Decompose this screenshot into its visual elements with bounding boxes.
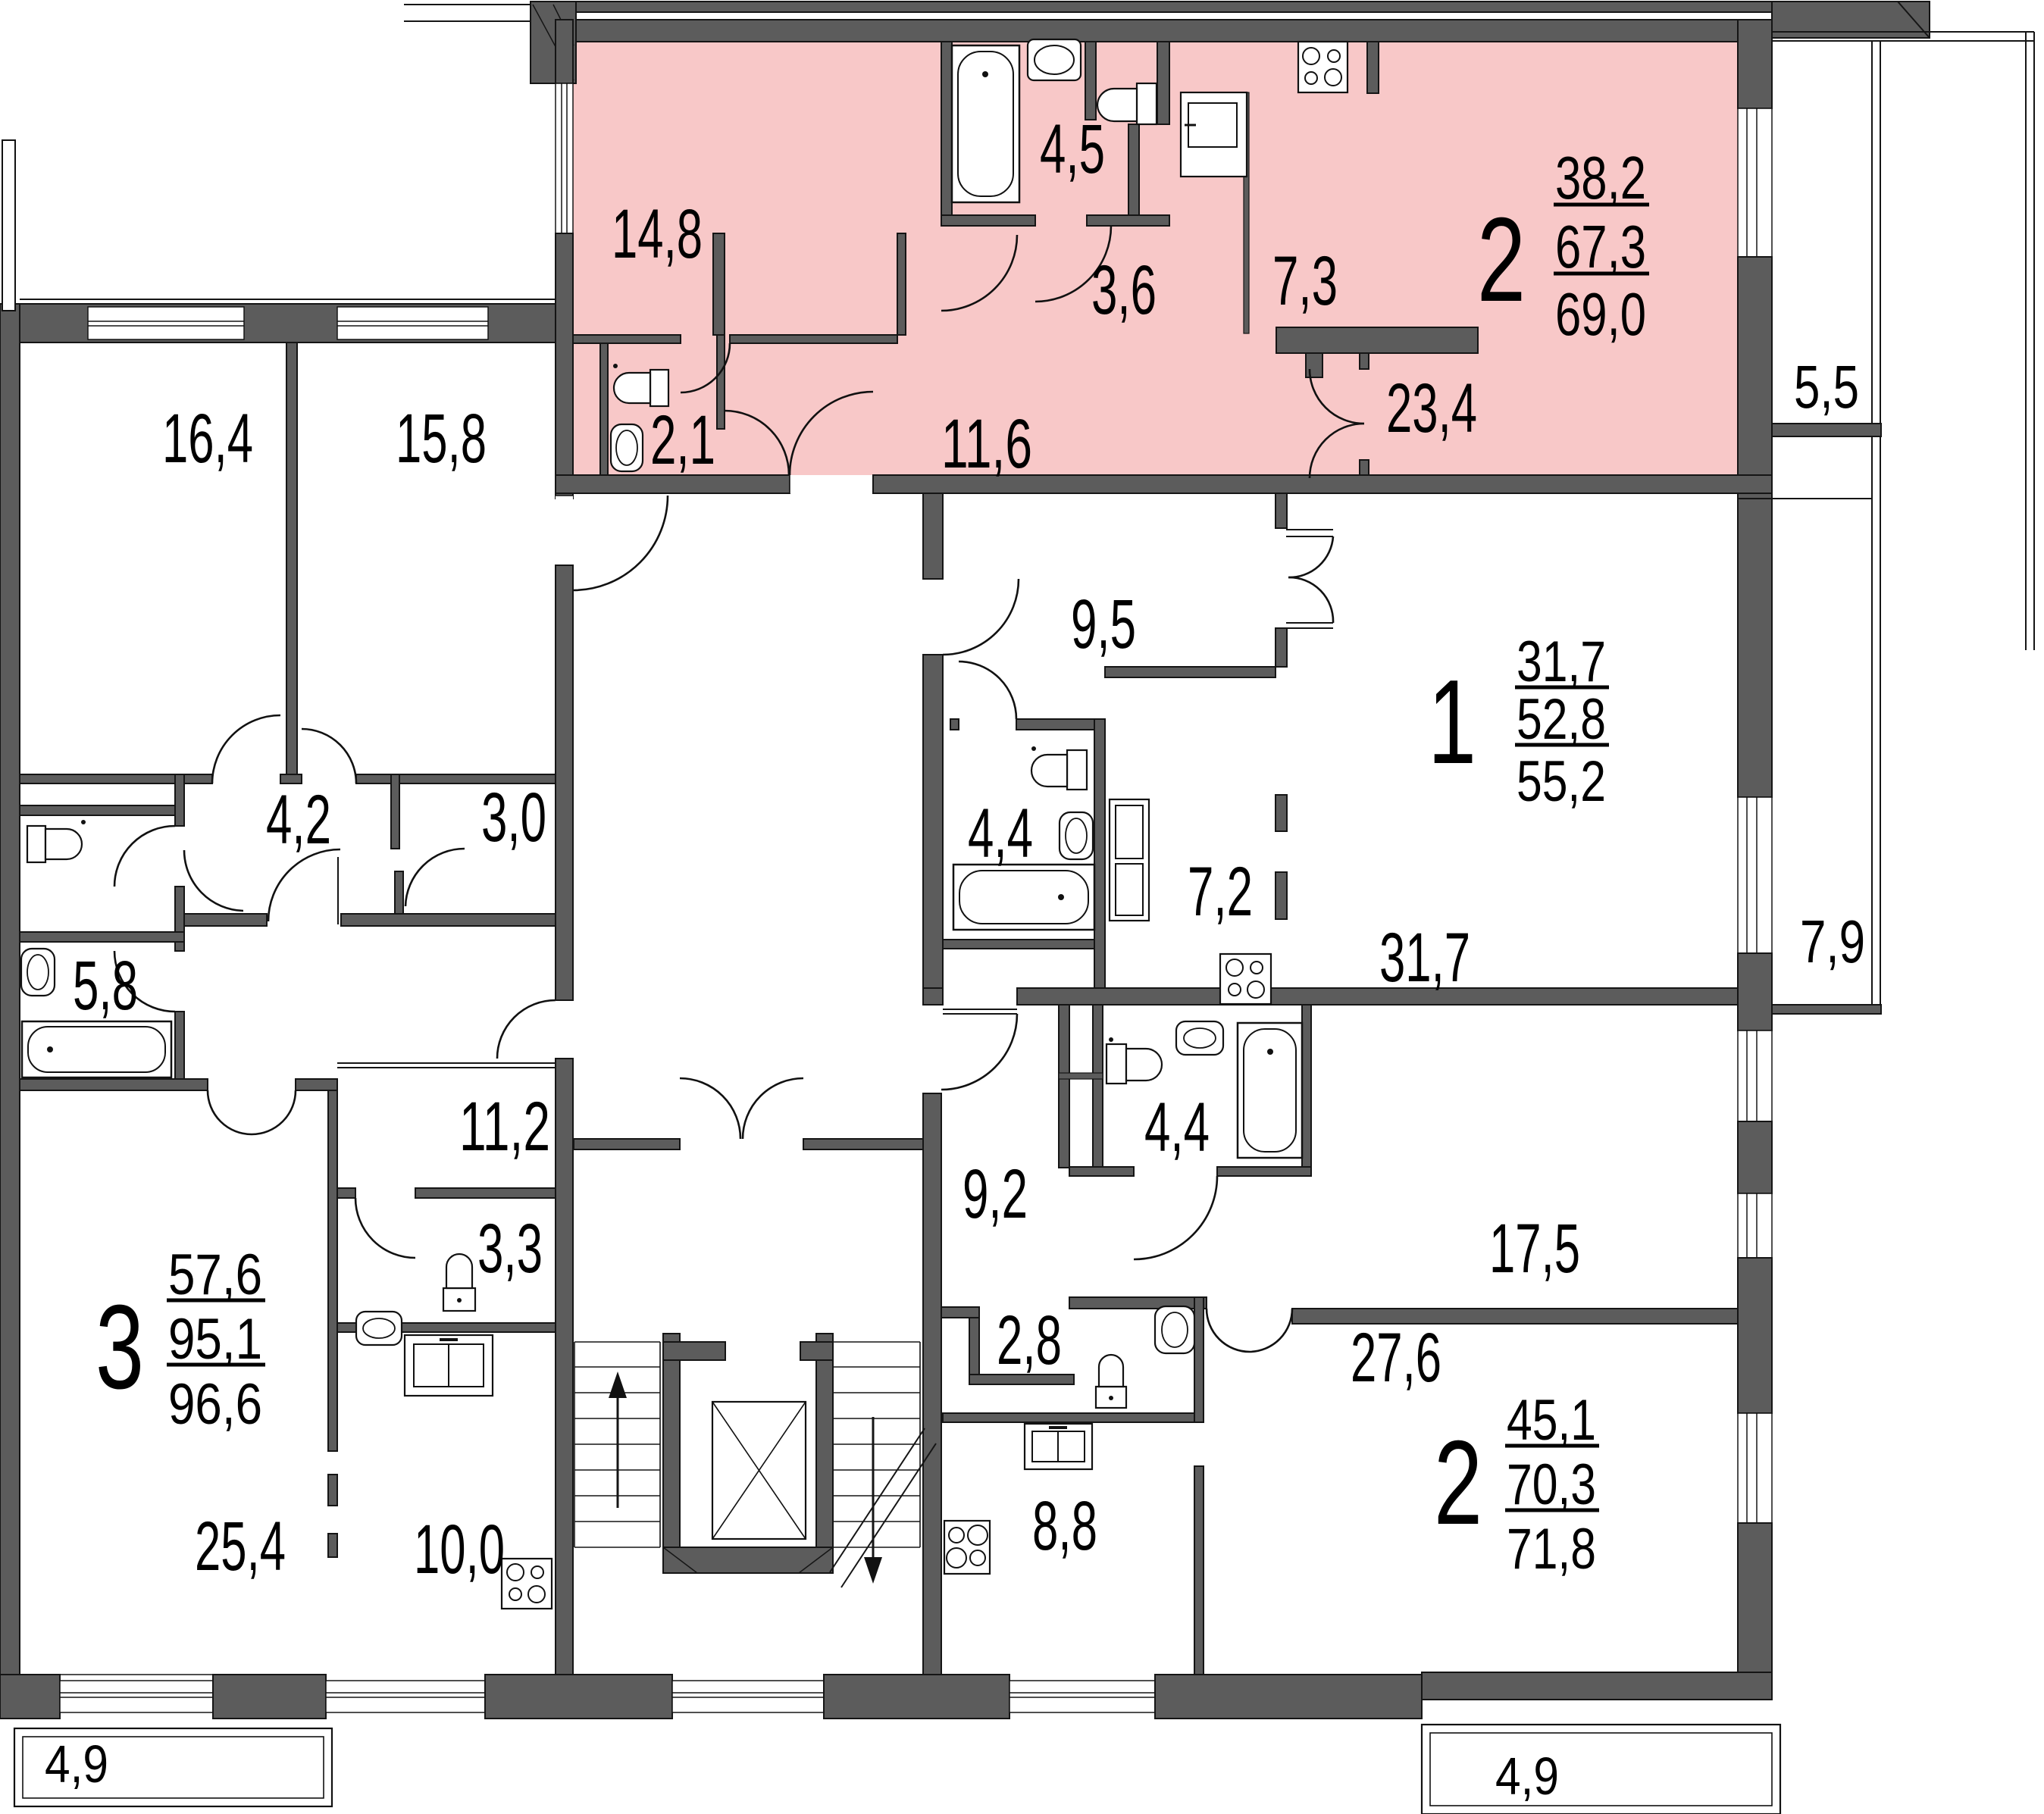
svg-text:23,4: 23,4 — [1386, 370, 1477, 447]
svg-text:4,2: 4,2 — [266, 781, 331, 859]
svg-text:2,1: 2,1 — [650, 402, 715, 479]
svg-text:7,9: 7,9 — [1800, 908, 1865, 975]
svg-text:2,8: 2,8 — [997, 1302, 1062, 1379]
svg-text:10,0: 10,0 — [414, 1511, 505, 1588]
svg-text:5,8: 5,8 — [73, 947, 138, 1024]
svg-text:45,1: 45,1 — [1507, 1388, 1596, 1453]
svg-text:15,8: 15,8 — [396, 400, 487, 477]
svg-text:5,5: 5,5 — [1794, 353, 1859, 421]
svg-text:67,3: 67,3 — [1555, 213, 1646, 280]
svg-text:27,6: 27,6 — [1351, 1319, 1441, 1396]
svg-text:70,3: 70,3 — [1507, 1453, 1596, 1517]
svg-text:9,2: 9,2 — [963, 1156, 1028, 1233]
svg-text:95,1: 95,1 — [168, 1307, 262, 1371]
svg-text:55,2: 55,2 — [1517, 749, 1606, 814]
svg-text:4,9: 4,9 — [1495, 1747, 1559, 1806]
svg-text:4,4: 4,4 — [1144, 1089, 1210, 1166]
svg-text:52,8: 52,8 — [1517, 687, 1606, 752]
svg-text:16,4: 16,4 — [162, 400, 253, 477]
svg-text:1: 1 — [1428, 655, 1476, 789]
svg-text:4,5: 4,5 — [1040, 111, 1105, 188]
svg-text:3,6: 3,6 — [1091, 252, 1157, 329]
svg-text:11,6: 11,6 — [941, 405, 1032, 483]
svg-text:25,4: 25,4 — [195, 1508, 286, 1585]
svg-text:96,6: 96,6 — [168, 1372, 262, 1437]
svg-text:3,0: 3,0 — [481, 779, 546, 856]
svg-text:2: 2 — [1434, 1416, 1482, 1550]
svg-text:3: 3 — [95, 1281, 144, 1414]
svg-text:14,8: 14,8 — [612, 195, 703, 273]
svg-text:4,9: 4,9 — [45, 1734, 108, 1794]
svg-text:11,2: 11,2 — [459, 1088, 550, 1165]
svg-text:71,8: 71,8 — [1507, 1517, 1596, 1581]
svg-text:38,2: 38,2 — [1555, 144, 1646, 211]
svg-text:3,3: 3,3 — [477, 1210, 543, 1287]
svg-text:31,7: 31,7 — [1517, 630, 1606, 694]
svg-text:17,5: 17,5 — [1489, 1210, 1580, 1287]
svg-text:4,4: 4,4 — [968, 795, 1033, 872]
svg-text:2: 2 — [1477, 193, 1526, 327]
svg-text:7,2: 7,2 — [1188, 853, 1253, 930]
svg-text:9,5: 9,5 — [1071, 586, 1136, 663]
svg-text:31,7: 31,7 — [1379, 919, 1470, 996]
svg-text:57,6: 57,6 — [168, 1243, 262, 1307]
svg-text:69,0: 69,0 — [1555, 280, 1646, 348]
svg-text:8,8: 8,8 — [1032, 1487, 1097, 1565]
svg-text:7,3: 7,3 — [1272, 242, 1338, 320]
